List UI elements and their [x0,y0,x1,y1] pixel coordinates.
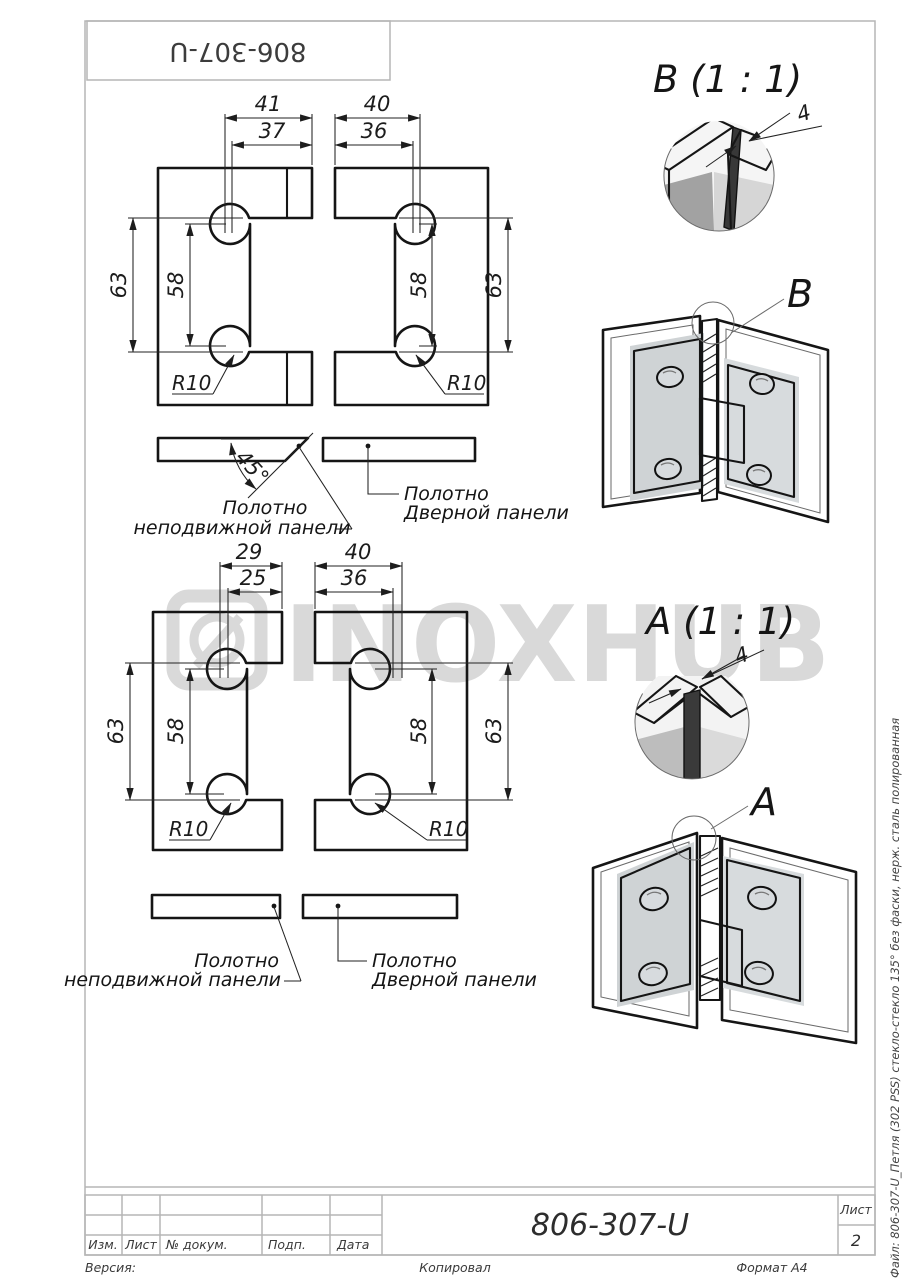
door-panel-label-top: Полотно Дверной панели [366,444,569,524]
radius-r10-left-bottom: R10 [169,803,231,841]
hinge-knuckle [702,319,717,501]
radius-r10-left-top: R10 [172,355,234,395]
svg-text:A (1 : 1): A (1 : 1) [644,600,795,643]
copied-label: Копировал [419,1260,490,1275]
door-panel-edge-strip [303,895,457,918]
svg-text:Дверной панели: Дверной панели [403,502,569,524]
svg-text:B (1 : 1): B (1 : 1) [653,58,802,101]
svg-text:58: 58 [407,718,431,745]
title-block: Изм. Лист № докум. Подп. Дата 806-307-U … [85,1187,875,1275]
drawing-canvas: INOXHUB 806-307-U 41 37 40 [0,0,905,1280]
dim-58-left-top: 58 [164,224,226,346]
col-doc: № докум. [165,1237,228,1252]
svg-text:58: 58 [164,272,188,299]
dim-40-top: 40 [335,92,420,233]
svg-text:неподвижной панели: неподвижной панели [64,969,281,991]
svg-text:63: 63 [482,272,506,299]
designation-rotated-text: 806-307-U [169,36,306,66]
svg-text:63: 63 [107,272,131,299]
dim-41: 41 [225,92,312,233]
top-cutout-drawing: 41 37 40 36 63 58 [107,92,569,539]
drawing-sheet: INOXHUB 806-307-U 41 37 40 [0,0,905,1280]
marker-a-label: A [748,780,777,824]
format-label: Формат A4 [736,1260,807,1275]
svg-text:R10: R10 [429,817,468,841]
marker-b-label: B [787,272,813,316]
fixed-panel-edge-strip [158,438,308,461]
radius-r10-right-bottom: R10 [375,803,468,841]
svg-text:58: 58 [164,718,188,745]
svg-text:неподвижной панели: неподвижной панели [133,517,350,539]
bevel-angle-callout: 45° [221,433,313,498]
part-designation: 806-307-U [531,1208,689,1243]
file-note-vertical: Файл: 806-307-U_Петля (302 PSS) стекло-с… [888,718,902,1278]
version-label: Версия: [85,1260,136,1275]
door-panel-edge-strip [323,438,475,461]
sheet-label: Лист [839,1202,872,1217]
svg-text:58: 58 [407,272,431,299]
sheet-number: 2 [851,1231,861,1250]
svg-text:36: 36 [341,566,368,590]
svg-text:41: 41 [255,92,282,116]
svg-text:R10: R10 [172,371,211,395]
svg-text:Дверной панели: Дверной панели [371,969,537,991]
svg-text:40: 40 [345,540,372,564]
svg-text:40: 40 [364,92,391,116]
svg-text:45°: 45° [231,445,274,489]
hinge-3d-view-b: B [603,272,828,522]
dim-36-top: 36 [335,119,413,233]
svg-text:36: 36 [361,119,388,143]
svg-text:63: 63 [104,718,128,745]
col-date: Дата [336,1237,369,1252]
dim-37: 37 [232,119,312,233]
svg-text:37: 37 [259,119,286,143]
svg-text:25: 25 [240,566,267,590]
knuckle-hatching [703,334,716,496]
svg-text:63: 63 [482,718,506,745]
svg-text:Полотно: Полотно [223,497,308,519]
svg-text:29: 29 [236,540,263,564]
hinge-3d-view-a: A [593,780,856,1043]
svg-text:R10: R10 [169,817,208,841]
fixed-panel-edge-strip [152,895,280,918]
col-list: Лист [124,1237,157,1252]
svg-text:4: 4 [794,100,814,127]
col-sign: Подп. [268,1237,306,1252]
svg-text:R10: R10 [447,371,486,395]
detail-view-b: B (1 : 1) 4 [650,58,822,232]
col-izm: Изм. [88,1237,117,1252]
